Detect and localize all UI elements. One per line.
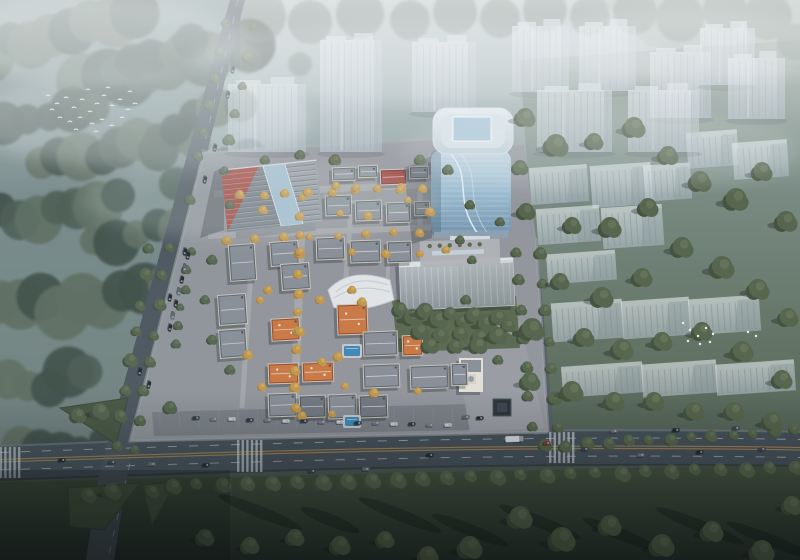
aerial-rendering: Aerial architectural rendering xyxy=(0,0,800,560)
corner-shade xyxy=(0,470,230,560)
rendering-canvas xyxy=(0,0,800,560)
